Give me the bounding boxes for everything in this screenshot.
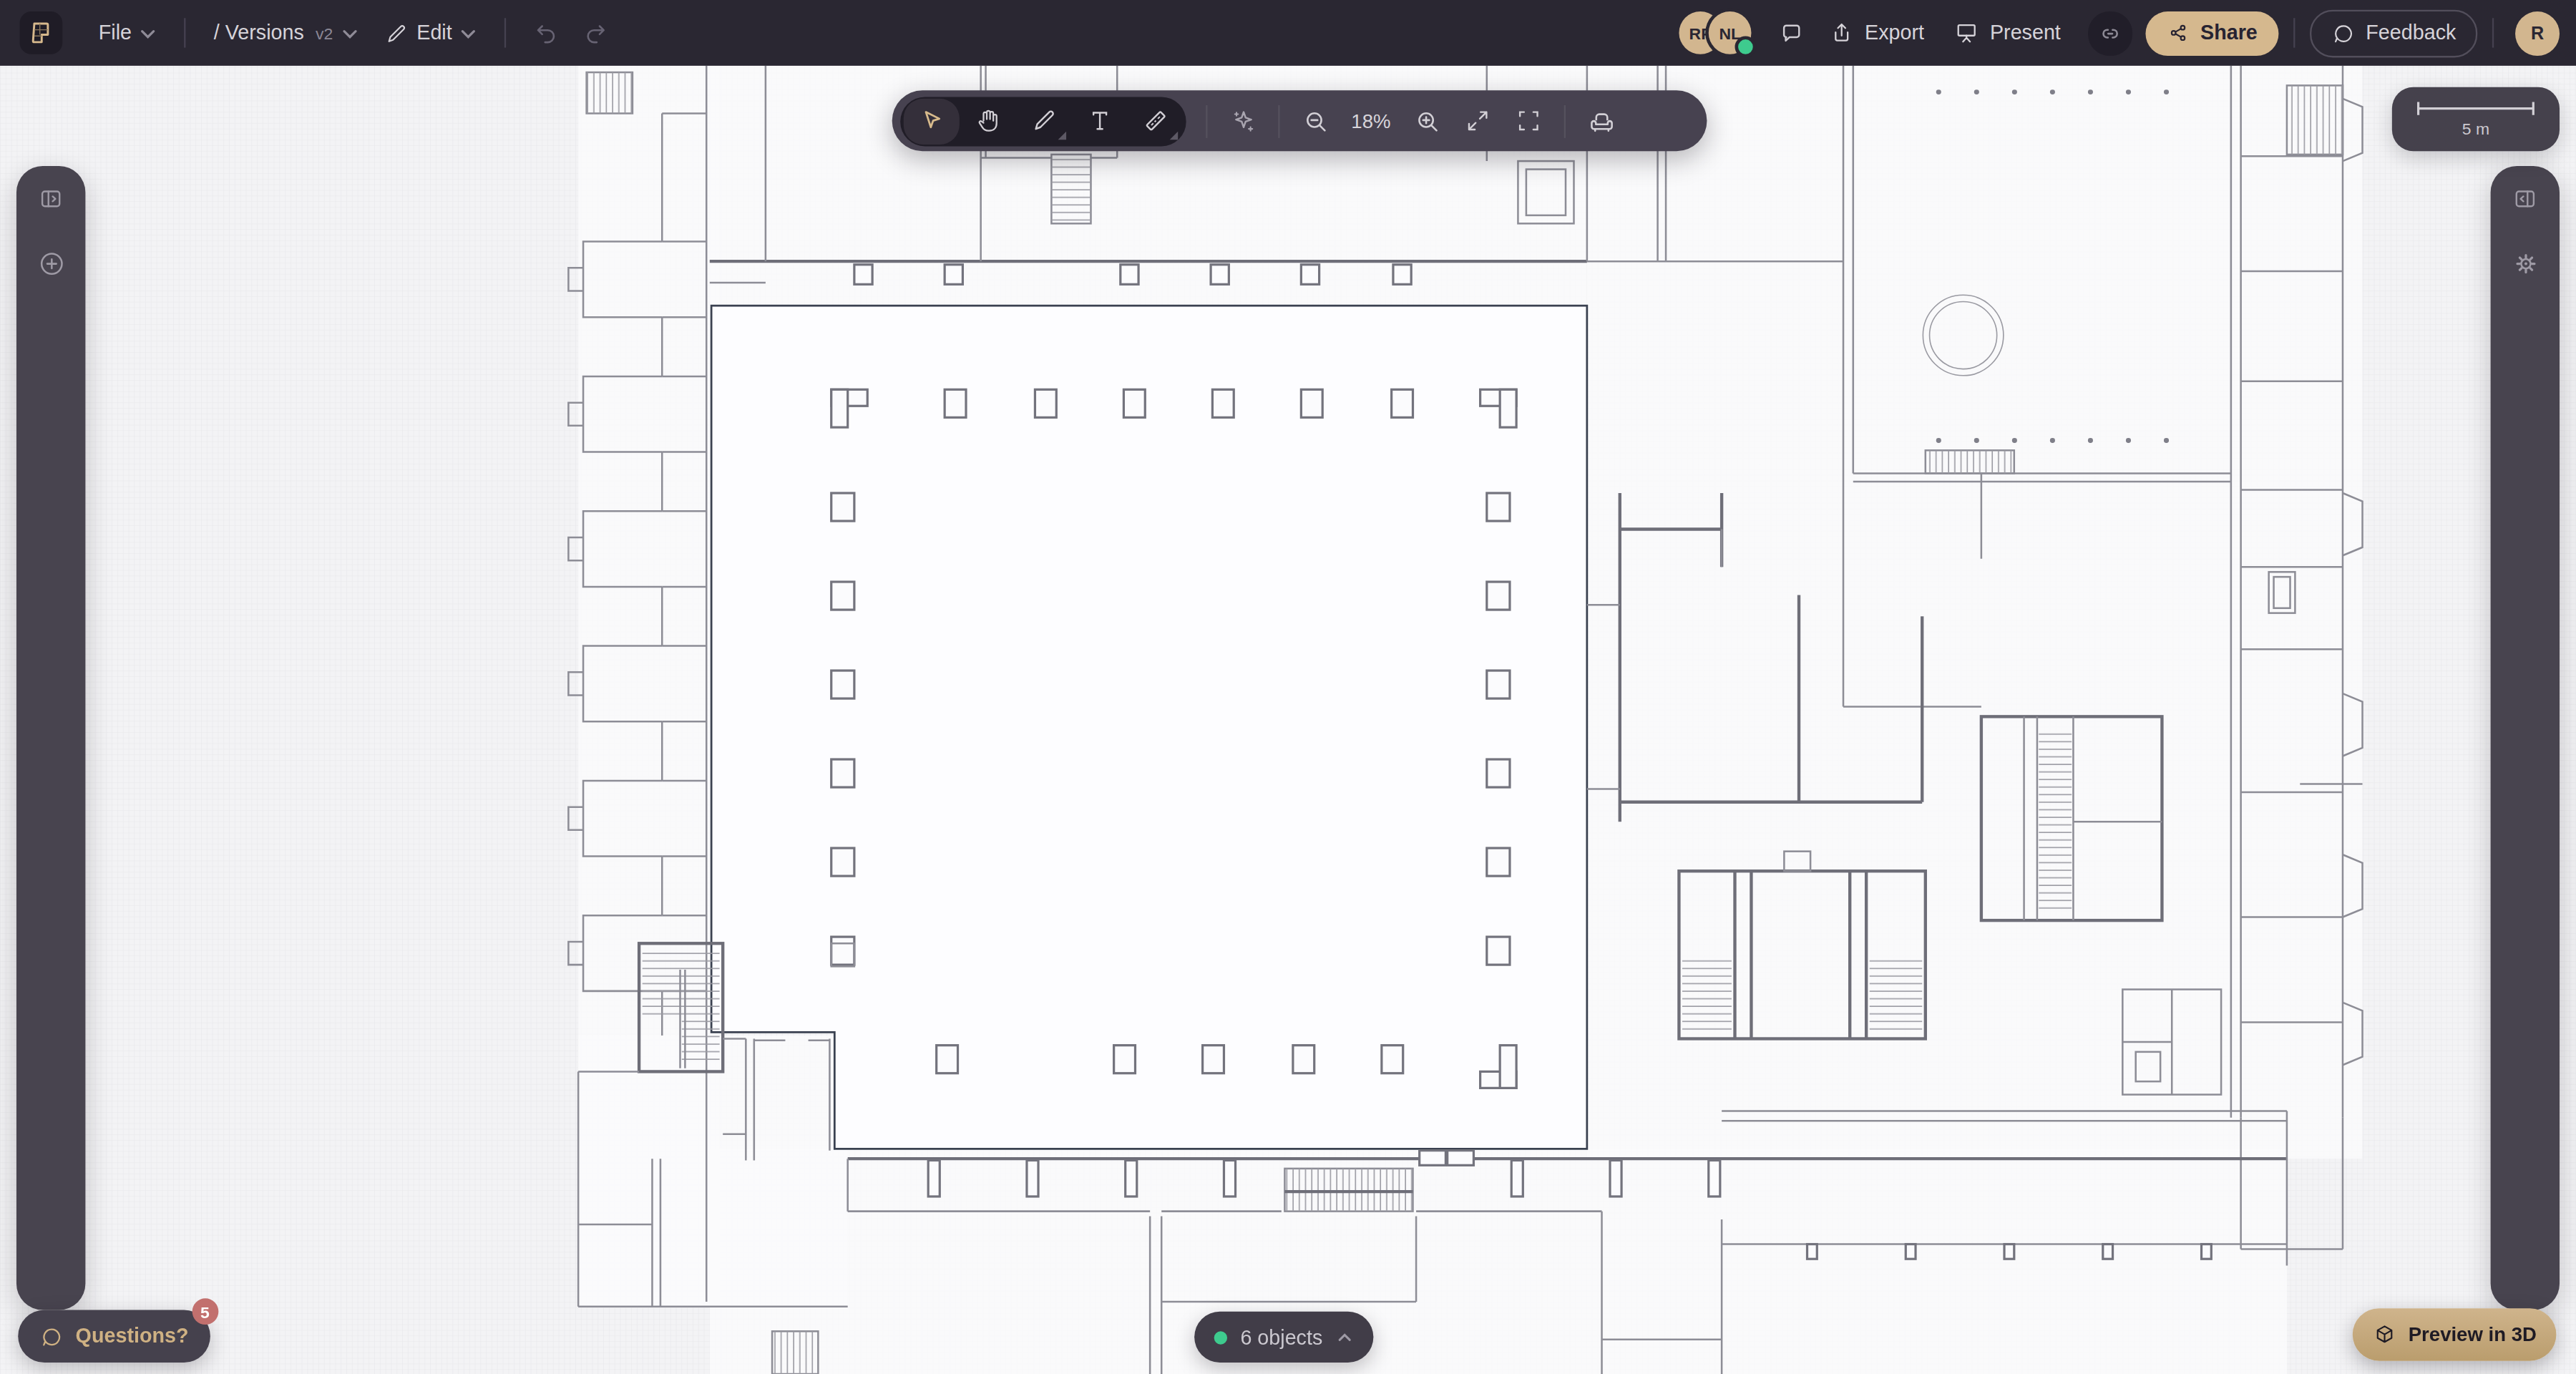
topbar-divider [185,18,186,47]
edit-menu-label: Edit [416,21,452,44]
feedback-bubble-icon [2331,21,2356,45]
gear-icon [2509,248,2541,279]
zoom-out-button[interactable] [1289,98,1340,144]
notification-badge: 5 [192,1298,218,1325]
cube-3d-icon [2372,1322,2396,1347]
comments-button[interactable] [1768,10,1814,56]
chevron-down-icon [140,29,157,39]
scale-ruler [2411,100,2540,117]
armchair-icon [1586,106,1616,135]
tool-bar: 18% [892,90,1707,151]
present-button[interactable]: Present [1953,20,2060,47]
export-label: Export [1865,21,1924,44]
submenu-indicator [1170,131,1178,139]
redo-icon [581,19,609,47]
pencil-icon [1029,107,1057,135]
undo-icon [532,19,560,47]
objects-count-label: 6 objects [1240,1325,1322,1348]
sparkles-icon [1228,106,1257,135]
expand-right-panel-button[interactable] [2502,176,2548,222]
text-tool[interactable] [1071,98,1127,144]
file-menu[interactable]: File [99,21,157,44]
drawing-tools-group [900,96,1186,145]
share-label: Share [2200,21,2258,44]
feedback-button[interactable]: Feedback [2310,9,2477,57]
zoom-level[interactable]: 18% [1340,109,1401,132]
app-window: File / Versions v2 Edit [0,0,2576,1374]
questions-button[interactable]: Questions? 5 [18,1310,210,1362]
panel-collapse-icon [2510,184,2540,213]
topbar-divider [2293,18,2295,47]
top-bar: File / Versions v2 Edit [0,0,2576,66]
panel-expand-icon [36,184,66,213]
copy-link-button[interactable] [2089,11,2133,55]
floor-plan-canvas[interactable] [0,0,2576,1374]
sync-status-dot [1214,1330,1227,1343]
app-logo[interactable] [20,11,63,54]
redo-button[interactable] [574,11,617,54]
present-label: Present [1990,21,2061,44]
collaborator-avatars[interactable]: RP NL [1679,11,1752,54]
add-object-button[interactable] [28,240,74,286]
zoom-in-button[interactable] [1401,98,1452,144]
zoom-in-icon [1412,106,1441,135]
chat-bubble-icon [39,1324,64,1348]
versions-label: / Versions [214,21,304,44]
settings-button[interactable] [2502,240,2548,286]
fullscreen-button[interactable] [1503,98,1554,144]
toolbar-divider [1206,104,1207,137]
comment-bubble-icon [1777,19,1805,47]
undo-button[interactable] [525,11,567,54]
app-logo-icon [26,18,56,47]
plus-circle-icon [35,248,67,279]
export-button[interactable]: Export [1829,20,1924,47]
feedback-label: Feedback [2366,21,2456,44]
scale-indicator: 5 m [2392,87,2560,152]
draw-tool[interactable] [1015,98,1071,144]
online-status-dot [1735,36,1757,58]
hand-icon [973,107,1001,135]
ai-assistant-button[interactable] [1217,98,1268,144]
fit-view-button[interactable] [1453,98,1503,144]
scale-label: 5 m [2462,120,2489,138]
versions-menu[interactable]: / Versions v2 [214,21,358,44]
toolbar-divider [1278,104,1279,137]
topbar-divider [504,18,506,47]
pan-tool[interactable] [960,98,1015,144]
furniture-library-button[interactable] [1576,98,1626,144]
submenu-indicator [1058,131,1066,139]
zoom-out-icon [1300,106,1330,135]
fullscreen-brackets-icon [1515,107,1543,135]
cursor-icon [917,107,945,135]
edit-menu[interactable]: Edit [384,21,477,45]
objects-status-pill[interactable]: 6 objects [1194,1312,1373,1363]
file-menu-label: File [99,21,132,44]
preview-3d-label: Preview in 3D [2409,1323,2537,1346]
version-tag: v2 [316,24,333,42]
topbar-divider [2492,18,2494,47]
user-avatar[interactable]: R [2515,11,2560,55]
select-tool[interactable] [904,98,960,144]
expand-left-panel-button[interactable] [28,176,74,222]
measure-tool[interactable] [1127,98,1183,144]
toolbar-divider [1564,104,1566,137]
left-panel-collapsed [16,166,85,1310]
share-icon [2167,21,2190,44]
chevron-down-icon [341,29,358,39]
chevron-up-icon[interactable] [1336,1331,1354,1343]
main-hall-selected-object[interactable] [711,306,1587,1149]
preview-3d-button[interactable]: Preview in 3D [2353,1308,2557,1360]
pencil-icon [384,21,408,45]
ruler-icon [1141,107,1169,135]
questions-label: Questions? [76,1325,189,1348]
link-icon [2097,19,2124,47]
present-icon [1953,20,1980,47]
right-panel-collapsed [2491,166,2560,1310]
share-button[interactable]: Share [2146,11,2278,55]
export-icon [1829,20,1855,47]
chevron-down-icon [460,29,477,39]
expand-arrows-icon [1464,107,1492,135]
text-icon [1085,107,1113,135]
